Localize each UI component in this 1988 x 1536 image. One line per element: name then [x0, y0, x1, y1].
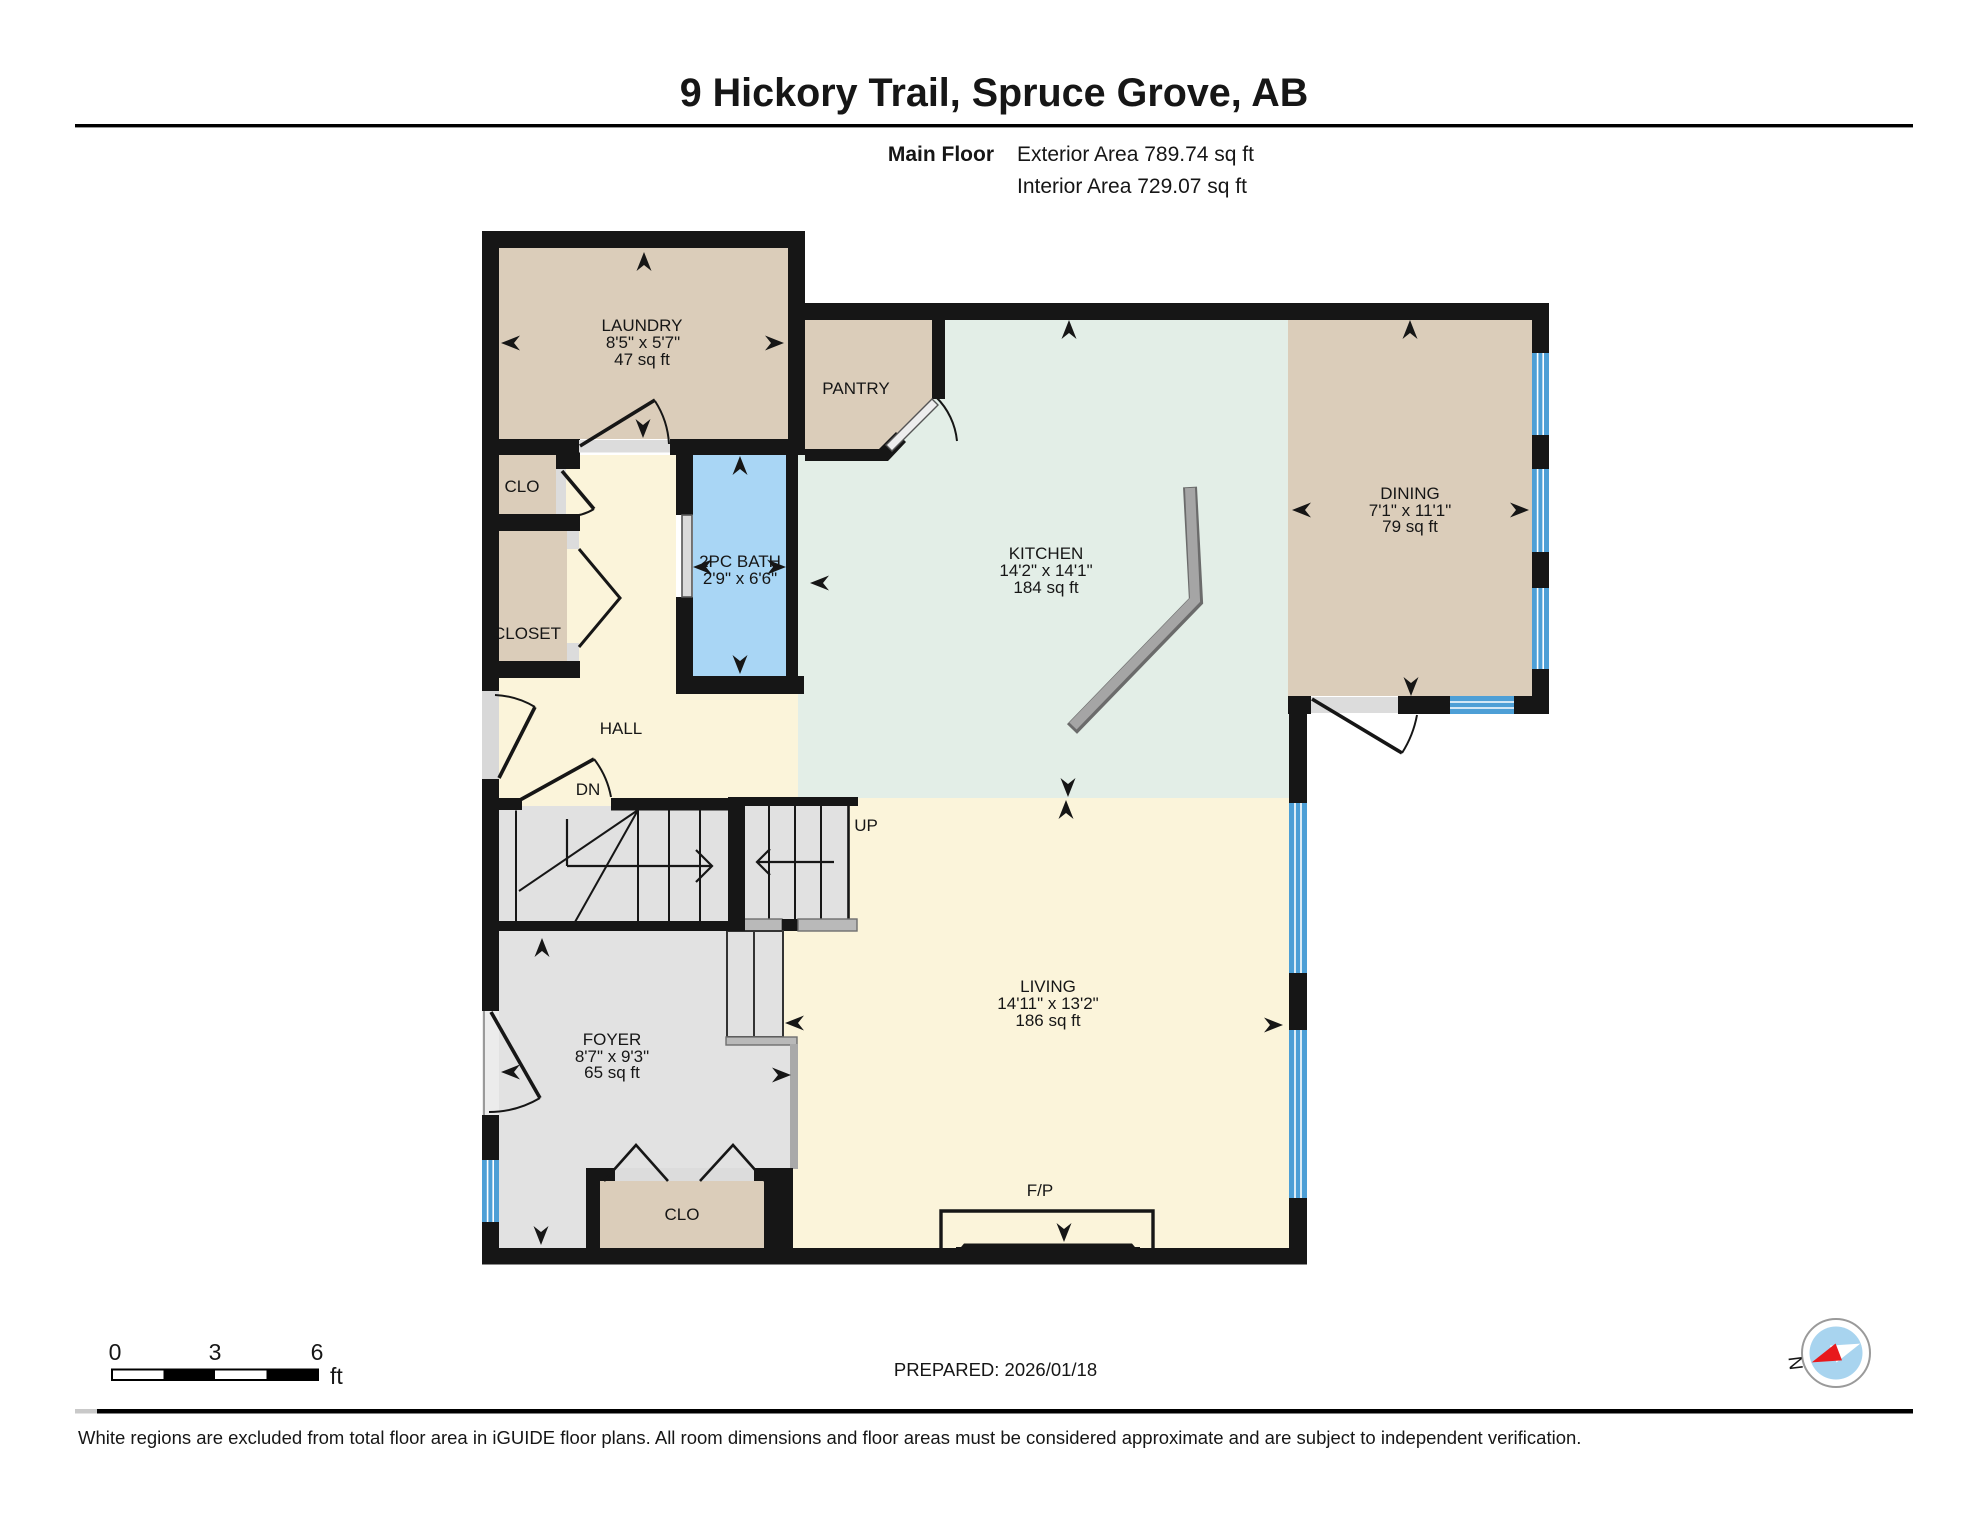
svg-text:0: 0 [109, 1339, 122, 1365]
svg-text:186 sq ft: 186 sq ft [1015, 1011, 1080, 1030]
svg-text:184 sq ft: 184 sq ft [1013, 578, 1078, 597]
svg-text:White regions are excluded fro: White regions are excluded from total fl… [78, 1427, 1581, 1448]
svg-text:Interior Area 729.07 sq ft: Interior Area 729.07 sq ft [1017, 175, 1247, 198]
svg-text:Exterior Area 789.74 sq ft: Exterior Area 789.74 sq ft [1017, 143, 1254, 166]
svg-text:Main Floor: Main Floor [888, 143, 994, 166]
svg-text:2'9" x 6'6": 2'9" x 6'6" [703, 569, 777, 588]
svg-text:DN: DN [576, 780, 601, 799]
svg-text:PREPARED: 2026/01/18: PREPARED: 2026/01/18 [894, 1359, 1097, 1380]
svg-text:65 sq ft: 65 sq ft [584, 1063, 640, 1082]
svg-text:PANTRY: PANTRY [822, 379, 889, 398]
svg-text:N: N [1785, 1355, 1808, 1371]
svg-text:HALL: HALL [600, 719, 643, 738]
svg-text:47 sq ft: 47 sq ft [614, 350, 670, 369]
svg-text:CLO: CLO [505, 477, 540, 496]
svg-text:CLOSET: CLOSET [493, 624, 561, 643]
svg-text:9 Hickory Trail, Spruce Grove,: 9 Hickory Trail, Spruce Grove, AB [680, 71, 1309, 115]
svg-text:79 sq ft: 79 sq ft [1382, 517, 1438, 536]
svg-text:ft: ft [330, 1363, 343, 1389]
svg-text:F/P: F/P [1027, 1181, 1053, 1200]
svg-text:6: 6 [311, 1339, 324, 1365]
svg-text:3: 3 [209, 1339, 222, 1365]
svg-text:CLO: CLO [665, 1205, 700, 1224]
svg-text:UP: UP [854, 816, 878, 835]
